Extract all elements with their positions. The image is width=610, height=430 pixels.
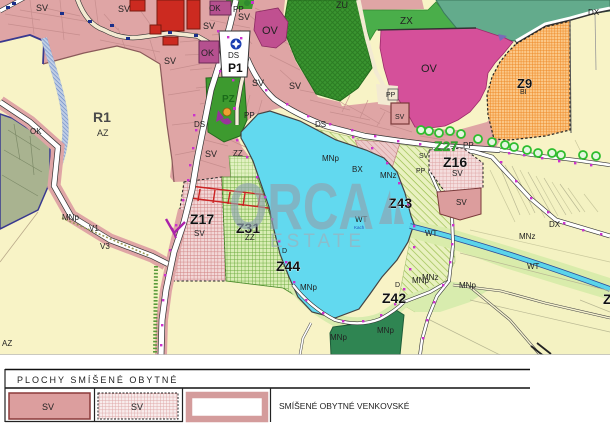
svg-text:Z43: Z43	[388, 195, 412, 211]
svg-text:AZ: AZ	[97, 128, 109, 138]
svg-text:OK: OK	[30, 127, 42, 136]
svg-text:WT: WT	[425, 229, 438, 238]
svg-text:DS: DS	[194, 120, 205, 129]
svg-text:PLOCHY SMÍŠENÉ OBYTNÉ: PLOCHY SMÍŠENÉ OBYTNÉ	[17, 375, 178, 385]
svg-text:SV: SV	[164, 56, 176, 66]
svg-text:ZU: ZU	[336, 0, 348, 10]
svg-text:SV: SV	[289, 81, 301, 91]
svg-text:PP: PP	[416, 168, 426, 175]
svg-text:AZ: AZ	[2, 339, 12, 348]
svg-text:PP: PP	[463, 141, 474, 150]
svg-text:D: D	[395, 282, 400, 289]
svg-text:PZ: PZ	[222, 94, 235, 105]
svg-text:SV: SV	[456, 198, 467, 207]
svg-text:DS: DS	[228, 51, 239, 60]
svg-text:MNp: MNp	[300, 283, 317, 292]
svg-text:P1: P1	[228, 61, 243, 75]
svg-text:ZX: ZX	[400, 16, 413, 27]
svg-text:MNp: MNp	[62, 213, 79, 222]
svg-text:MNz: MNz	[380, 171, 396, 180]
svg-text:SV: SV	[395, 114, 405, 121]
svg-text:DS: DS	[315, 120, 326, 129]
svg-text:SV: SV	[42, 402, 54, 412]
svg-text:SV: SV	[36, 3, 48, 13]
svg-text:SV: SV	[131, 402, 143, 412]
svg-text:ZZ: ZZ	[233, 149, 243, 158]
svg-text:SV: SV	[194, 229, 205, 238]
svg-text:DX: DX	[588, 8, 600, 17]
svg-text:OV: OV	[421, 63, 438, 75]
svg-text:SV: SV	[203, 21, 215, 31]
svg-text:Z17: Z17	[190, 211, 214, 227]
svg-text:Z42: Z42	[382, 290, 406, 306]
svg-text:MNp: MNp	[330, 333, 347, 342]
svg-text:SV: SV	[118, 4, 130, 14]
svg-text:MNz: MNz	[422, 273, 438, 282]
svg-text:Z27: Z27	[434, 138, 458, 154]
svg-text:Z: Z	[603, 291, 610, 307]
svg-text:DX: DX	[549, 220, 561, 229]
svg-text:PP: PP	[386, 92, 396, 99]
svg-text:V1: V1	[89, 224, 99, 233]
svg-text:PP: PP	[244, 111, 255, 120]
svg-text:OK: OK	[209, 4, 221, 13]
svg-text:MNz: MNz	[519, 232, 535, 241]
svg-text:SV: SV	[252, 78, 264, 88]
svg-text:Z44: Z44	[276, 258, 300, 274]
svg-text:SMÍŠENÉ OBYTNÉ VENKOVSKÉ: SMÍŠENÉ OBYTNÉ VENKOVSKÉ	[279, 401, 410, 411]
svg-text:OV: OV	[262, 25, 279, 37]
svg-text:OK: OK	[201, 48, 214, 58]
svg-text:ESTATE: ESTATE	[270, 231, 365, 252]
svg-text:SV: SV	[419, 153, 429, 160]
svg-text:MNp: MNp	[377, 326, 394, 335]
svg-text:MNp: MNp	[322, 154, 339, 163]
svg-text:R1: R1	[93, 109, 111, 125]
svg-text:SV: SV	[205, 149, 217, 159]
svg-text:Z9: Z9	[517, 76, 532, 91]
svg-text:WT: WT	[527, 262, 540, 271]
svg-text:MNp: MNp	[459, 281, 476, 290]
svg-text:V3: V3	[100, 242, 110, 251]
svg-text:SV: SV	[452, 169, 463, 178]
svg-text:PP: PP	[233, 5, 244, 14]
svg-text:Z16: Z16	[443, 154, 467, 170]
